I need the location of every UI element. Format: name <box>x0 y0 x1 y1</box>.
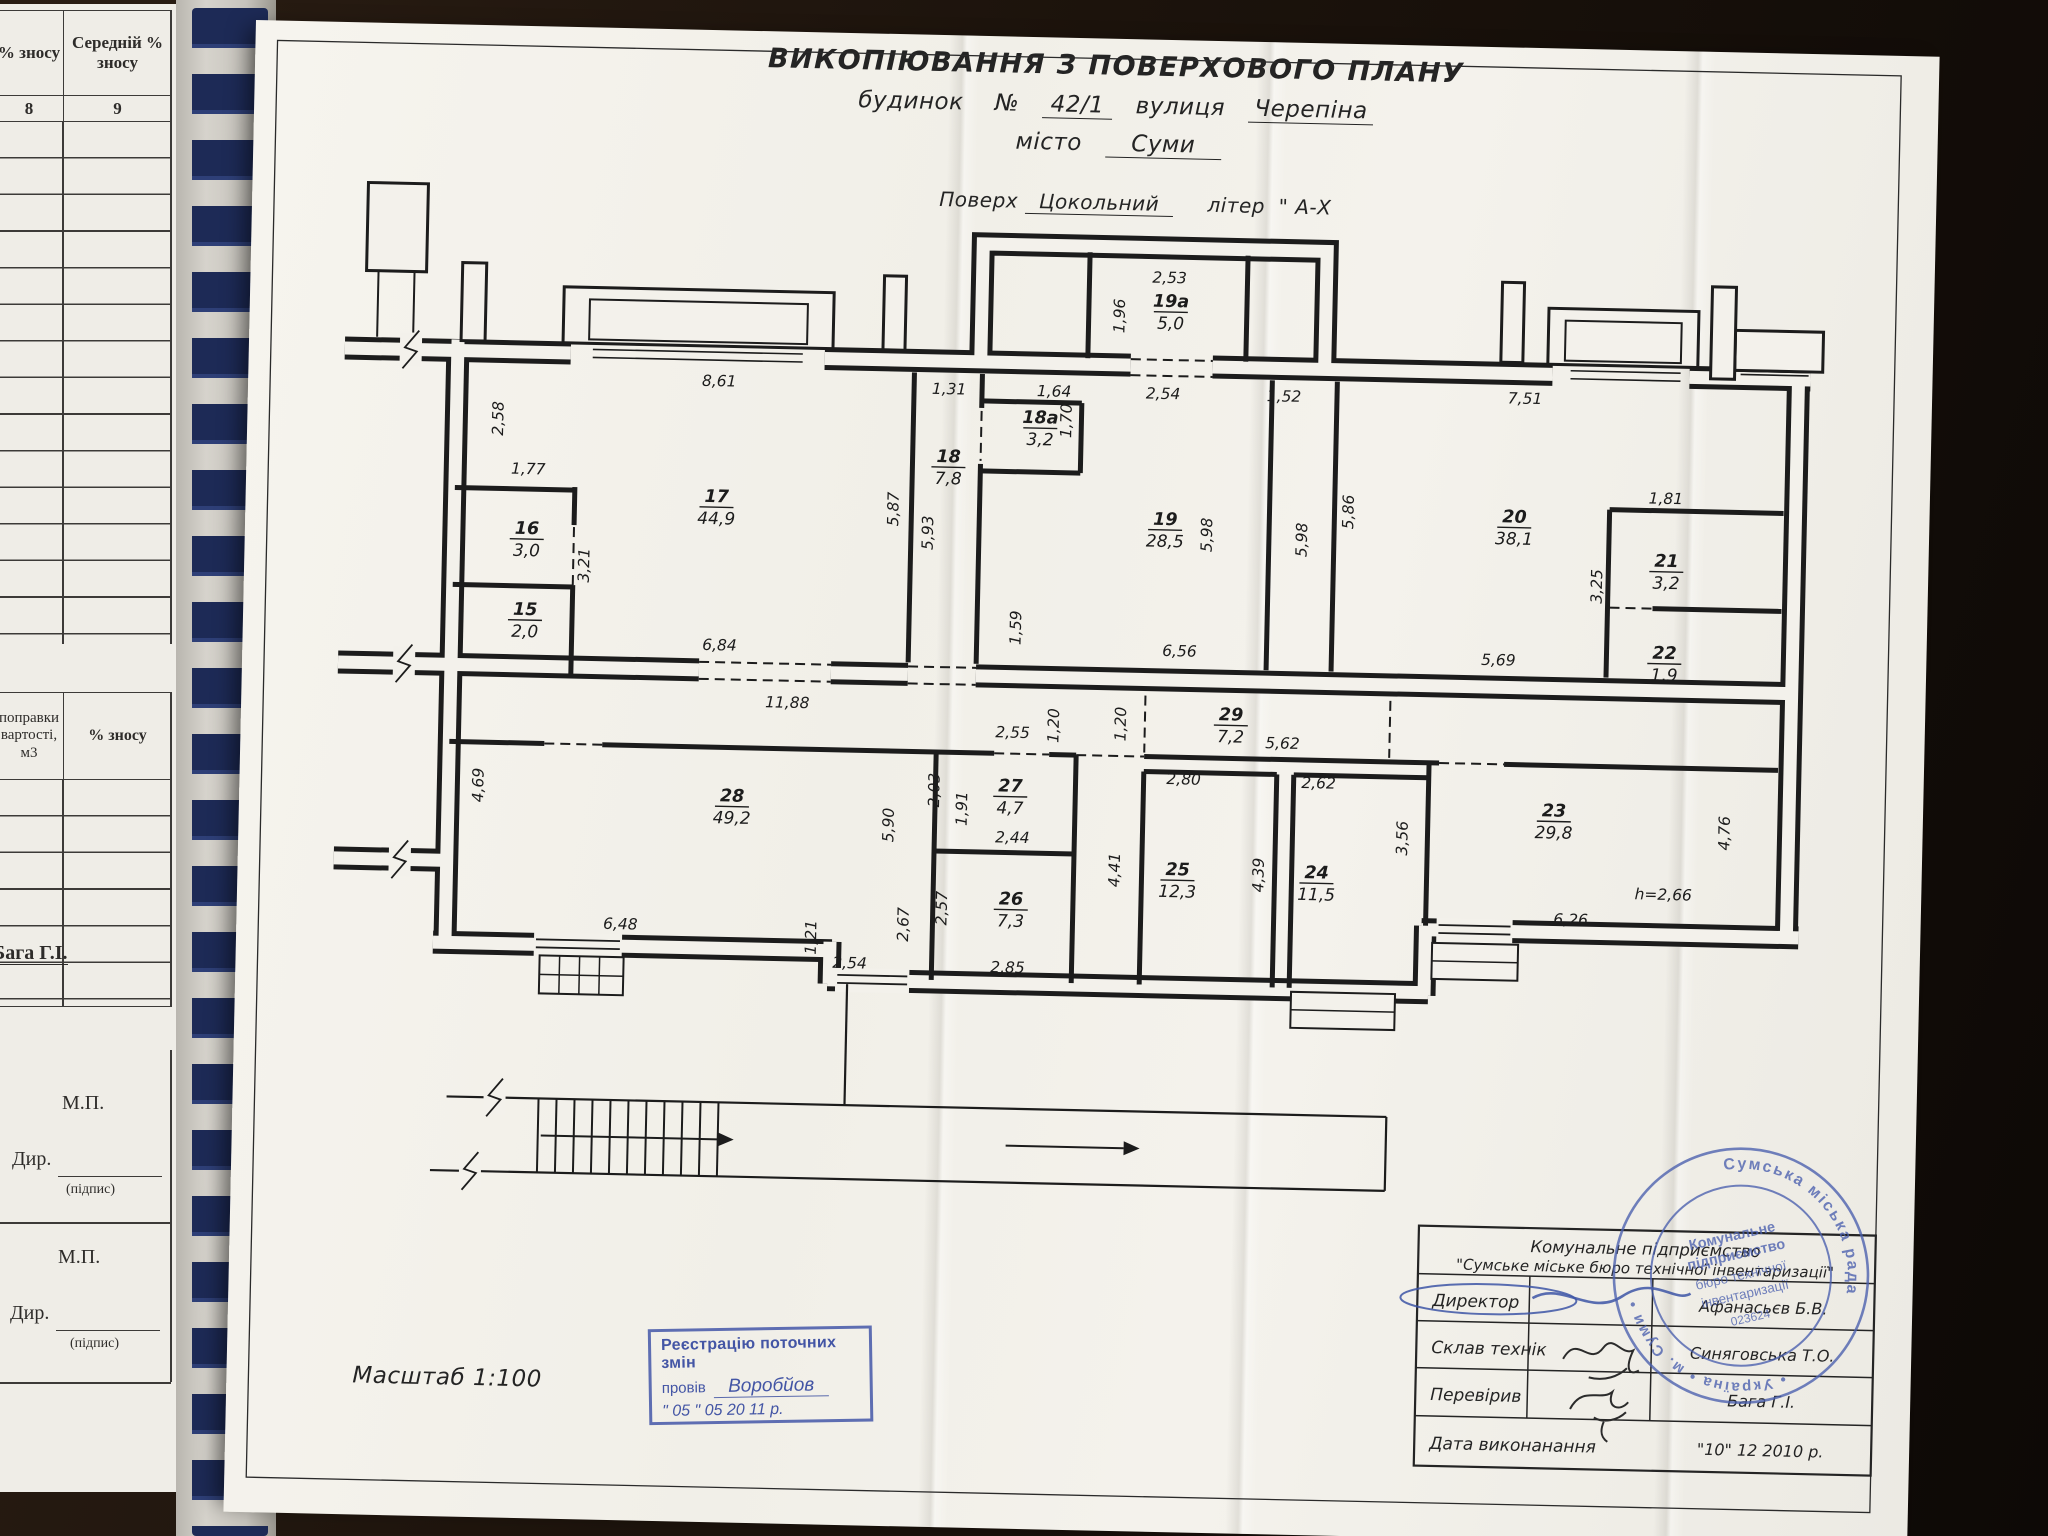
dimension-label: 2,80 <box>1166 770 1201 789</box>
room-number: 21 <box>1654 552 1679 573</box>
reg-performed-name: Воробйов <box>714 1374 828 1398</box>
dimension-label: 4,41 <box>1105 852 1124 887</box>
dimension-label: 3,56 <box>1393 821 1412 856</box>
dimension-label: 6,84 <box>702 636 737 655</box>
room-number: 18а <box>1022 408 1059 429</box>
mp-label-1: М.П. <box>62 1092 104 1115</box>
row-label-tech: Склав технік <box>1431 1338 1548 1361</box>
mp-label-2: М.П. <box>58 1246 100 1269</box>
col-9-number: 9 <box>64 96 171 121</box>
dimension-label: 1,96 <box>1110 298 1129 333</box>
dimension-label: 1,81 <box>1648 489 1683 508</box>
dimension-label: 4,69 <box>469 768 488 803</box>
dimension-label: 2,62 <box>1301 774 1336 793</box>
dir-label-2: Дир. <box>10 1302 49 1325</box>
room-area: 7,3 <box>997 911 1024 932</box>
dimension-label: 2,57 <box>932 891 951 926</box>
table1-divider <box>62 122 64 644</box>
dimension-label: 1,59 <box>1007 610 1026 645</box>
dimension-label: 5,98 <box>1198 517 1217 552</box>
dimension-label: 2,55 <box>995 723 1030 742</box>
dimension-label: 1,21 <box>802 920 821 955</box>
room-number: 28 <box>720 786 745 807</box>
col-8-number: 8 <box>0 96 64 121</box>
room-number: 16 <box>515 519 540 540</box>
room-number: 20 <box>1502 507 1527 528</box>
t2-col2-header: % зносу <box>64 693 171 779</box>
dimension-label: 1,64 <box>1037 382 1072 401</box>
room-area: 1,9 <box>1650 666 1677 687</box>
room-area: 29,8 <box>1534 823 1572 844</box>
room-area: 4,7 <box>996 798 1024 819</box>
room-area: 38,1 <box>1495 529 1533 550</box>
room-area: 3,2 <box>1026 430 1053 451</box>
mp-bottom-line <box>0 1382 171 1384</box>
dimension-label: 8,61 <box>702 372 737 391</box>
dimension-label: 1,20 <box>1111 706 1130 741</box>
left-underlying-page: % зносу Середній % зносу 8 9 поправки ва… <box>0 4 178 1492</box>
dimension-label: 1,70 <box>1057 403 1076 438</box>
dimension-label: 1,77 <box>511 460 546 479</box>
dimension-label: 6,56 <box>1162 642 1197 661</box>
baga-signature-name: Бага Г.І. <box>0 942 68 965</box>
podpis-label-1: (підпис) <box>66 1182 115 1198</box>
direction-arrow <box>718 1132 734 1146</box>
date-label: Дата виконанання <box>1428 1434 1596 1458</box>
dimension-label: 5,87 <box>884 491 903 526</box>
dimension-label: 3,21 <box>575 548 594 583</box>
room-number: 27 <box>998 776 1024 797</box>
room-area: 5,0 <box>1157 314 1184 335</box>
dimension-label: 4,76 <box>1715 816 1734 851</box>
dimension-label: 2,54 <box>832 954 867 973</box>
dimension-label: 1,31 <box>932 380 967 399</box>
dimension-label: 5,69 <box>1481 651 1516 670</box>
mp-divider-line <box>0 1222 171 1224</box>
row-label-checked: Перевірив <box>1430 1385 1522 1407</box>
reg-stamp-line1: Реєстрацію поточних змін <box>661 1334 860 1373</box>
room-number: 25 <box>1165 860 1190 881</box>
date-value: "10" 12 2010 р. <box>1697 1440 1824 1462</box>
room-area: 11,5 <box>1297 885 1335 906</box>
dimension-label: 5,86 <box>1339 494 1358 529</box>
registration-stamp: Реєстрацію поточних змін провів Воробйов… <box>648 1325 874 1425</box>
dimension-label: 1,20 <box>1044 708 1063 743</box>
left-table1-rows <box>0 122 172 644</box>
dimension-label: 5,90 <box>879 807 898 842</box>
room-number: 29 <box>1219 705 1244 726</box>
room-number: 15 <box>513 600 538 621</box>
dimension-label: 2,03 <box>925 773 944 808</box>
row-label-director: Директор <box>1431 1291 1520 1313</box>
dir-signature-line-2 <box>56 1330 160 1331</box>
room-number: 26 <box>999 889 1024 910</box>
dimension-label: 1,91 <box>953 791 972 826</box>
dimension-label: 5,62 <box>1265 734 1300 753</box>
dimension-label: 2,44 <box>995 828 1030 847</box>
direction-arrow <box>1123 1141 1139 1155</box>
dimension-label: 6,48 <box>603 915 638 934</box>
director-signature <box>1532 1285 1690 1304</box>
reg-performed-label: провів <box>662 1379 706 1397</box>
dimension-label: 5,93 <box>919 515 938 550</box>
room-number: 22 <box>1652 644 1677 665</box>
room-number: 19 <box>1153 510 1178 531</box>
room-area: 7,2 <box>1217 727 1244 748</box>
room-area: 7,8 <box>934 469 962 490</box>
dimension-label: 1,52 <box>1267 387 1302 406</box>
dimension-label: h=2,66 <box>1634 885 1692 904</box>
room-area: 3,2 <box>1652 574 1679 595</box>
room-area: 12,3 <box>1158 882 1196 903</box>
dimension-label: 5,98 <box>1293 522 1312 557</box>
left-table2-header: поправки вартості, м3 % зносу <box>0 692 172 780</box>
room-area: 49,2 <box>713 808 751 829</box>
room-number: 19а <box>1153 292 1190 313</box>
t2-col1-header: поправки вартості, м3 <box>0 693 64 779</box>
dimension-label: 2,54 <box>1146 385 1181 404</box>
floor-plan-sheet: ВИКОПІЮВАННЯ З ПОВЕРХОВОГО ПЛАНУ будинок… <box>223 20 1939 1536</box>
dimension-label: 2,53 <box>1152 269 1187 288</box>
room-area: 28,5 <box>1146 532 1184 553</box>
dir-label-1: Дир. <box>12 1148 51 1171</box>
dimension-label: 2,58 <box>489 401 508 436</box>
walls-layer <box>327 182 1827 1219</box>
col-8-header: % зносу <box>0 11 64 95</box>
table1-right-border <box>170 10 172 644</box>
room-area: 2,0 <box>511 622 538 643</box>
photo-of-floor-plan-document: % зносу Середній % зносу 8 9 поправки ва… <box>0 0 2048 1536</box>
dimension-label: 11,88 <box>765 693 810 712</box>
dimension-label: 2,67 <box>894 907 913 942</box>
mp-box-right-border <box>170 1050 172 1382</box>
dimension-label: 7,51 <box>1508 389 1543 408</box>
dimension-label: 4,39 <box>1249 858 1268 893</box>
room-number: 18 <box>936 447 961 468</box>
podpis-label-2: (підпис) <box>70 1336 119 1352</box>
col-9-header: Середній % зносу <box>64 11 171 95</box>
table2-right-border <box>170 692 172 1006</box>
tech-signature <box>1563 1342 1640 1380</box>
floor-plan-drawing: 152,0163,01744,9187,818а3,219а5,01928,52… <box>223 20 1939 1536</box>
checked-signature <box>1569 1391 1628 1442</box>
left-table1-header: % зносу Середній % зносу <box>0 10 172 96</box>
room-number: 23 <box>1542 801 1567 822</box>
dir-signature-line-1 <box>58 1176 162 1177</box>
room-area: 44,9 <box>697 509 735 530</box>
table2-divider <box>62 780 64 1006</box>
room-area: 3,0 <box>513 541 540 562</box>
room-number: 17 <box>704 487 730 508</box>
left-table1-numbers: 8 9 <box>0 96 172 122</box>
dimension-label: 6,26 <box>1553 911 1588 930</box>
left-table2-rows <box>0 780 172 1007</box>
reg-stamp-line2: провів Воробйов <box>662 1374 860 1399</box>
room-number: 24 <box>1304 863 1329 884</box>
reg-stamp-date: " 05 " 05 20 11 р. <box>662 1400 860 1421</box>
dimension-label: 3,25 <box>1588 569 1607 604</box>
dimension-label: 2,85 <box>990 958 1025 977</box>
